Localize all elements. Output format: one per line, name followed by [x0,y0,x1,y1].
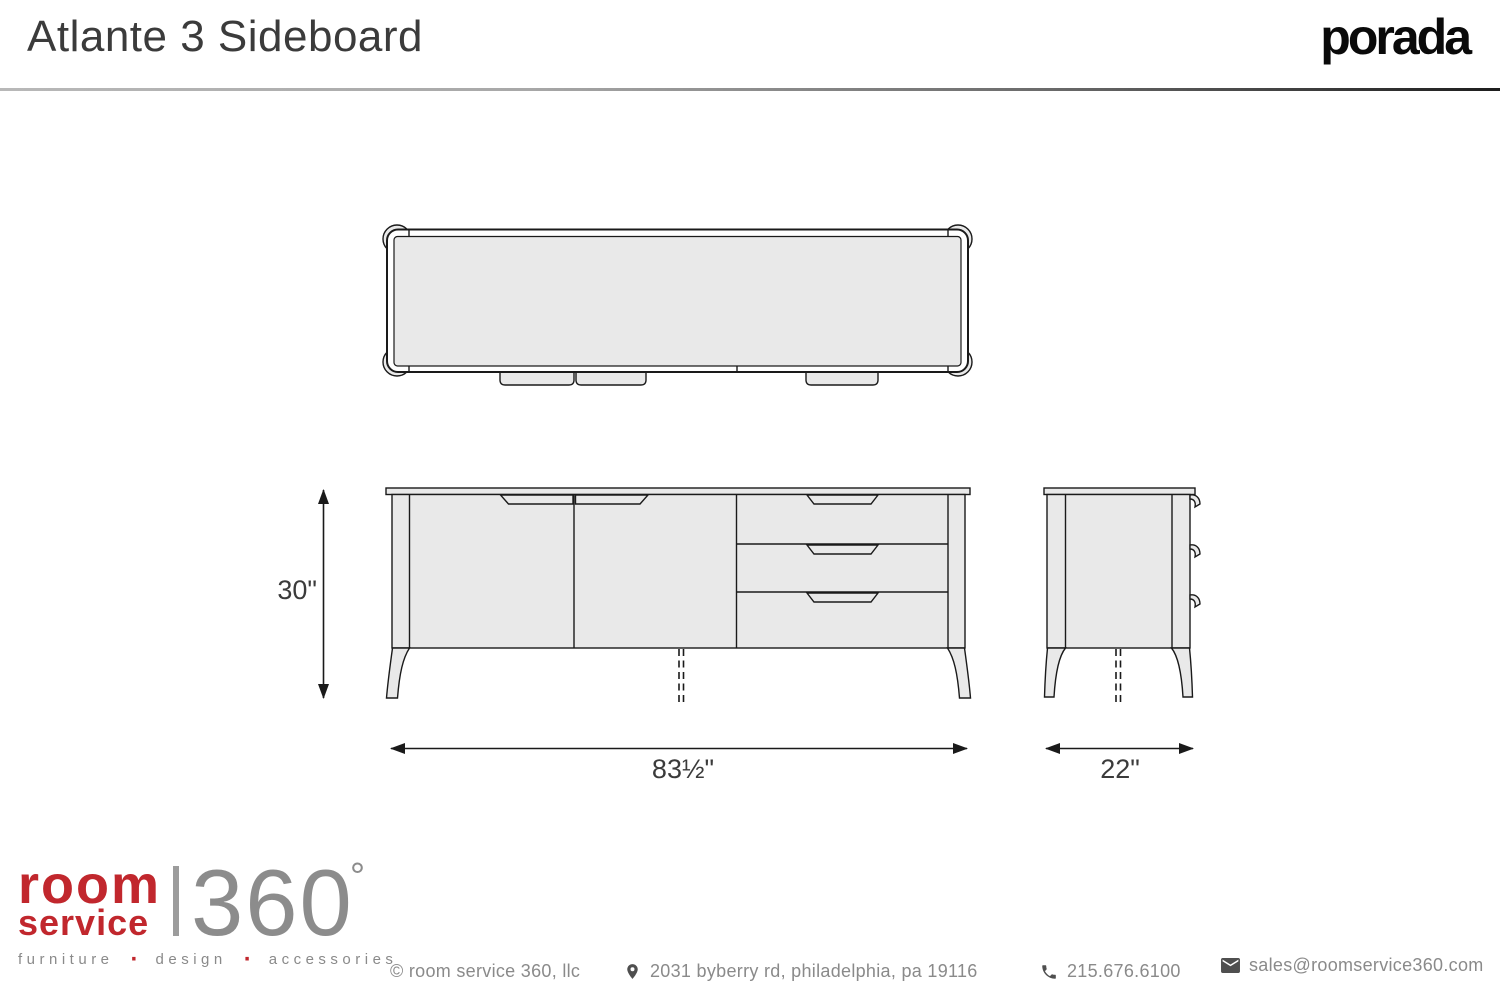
tagline-dot: · [244,955,252,965]
side-view-body [1047,495,1190,649]
side-view-handle-hook [1190,495,1200,507]
depth-dimension: 22" [1046,749,1193,785]
location-pin-icon [624,961,641,982]
side-view-tabletop [1044,488,1195,495]
roomservice360-logo: room service 360 ° furniture · design · … [18,858,397,968]
front-view-tabletop [386,488,970,495]
front-view-leg [387,648,410,698]
depth-dimension-label: 22" [1100,754,1140,784]
door-handle [576,495,649,504]
tagline-accessories: accessories [269,951,398,968]
front-view-body [392,495,965,649]
logo-360: 360 [191,868,354,938]
height-dimension: 30" [277,490,323,698]
side-view-leg [1045,648,1066,697]
side-view-handle-hook [1190,545,1200,557]
copyright-label: © room service 360, llc [390,961,580,982]
side-view-drawing [1044,488,1200,705]
logo-divider-bar [173,866,179,936]
top-view-carcass [394,237,961,367]
logo-degree-symbol: ° [350,858,365,896]
envelope-icon [1221,958,1240,973]
width-dimension: 83½" [391,749,967,785]
side-view-handle-hook [1190,595,1200,607]
drawer-handle [807,545,878,554]
logo-wordmark: room service [18,863,161,938]
width-dimension-label: 83½" [652,754,714,784]
phone-label: 215.676.6100 [1067,961,1181,982]
tagline-dot: · [131,955,139,965]
door-handle [501,495,574,504]
logo-word-room: room [18,863,161,907]
front-view-drawing [386,488,971,702]
phone-icon [1040,963,1058,981]
drawer-handle [807,495,878,504]
copyright-text: © room service 360, llc [390,961,580,982]
top-view-drawing [383,225,972,385]
logo-word-service: service [18,907,161,938]
phone-block: 215.676.6100 [1040,961,1181,982]
front-view-leg [948,648,971,698]
tagline-furniture: furniture [18,951,114,968]
email-label: sales@roomservice360.com [1249,955,1484,976]
side-view-leg [1172,648,1193,697]
logo-tagline: furniture · design · accessories [18,951,397,968]
height-dimension-label: 30" [277,575,317,605]
email-block: sales@roomservice360.com [1221,955,1484,976]
address-block: 2031 byberry rd, philadelphia, pa 19116 [624,961,978,982]
tagline-design: design [156,951,227,968]
drawer-handle [807,593,878,602]
address-label: 2031 byberry rd, philadelphia, pa 19116 [650,961,978,982]
